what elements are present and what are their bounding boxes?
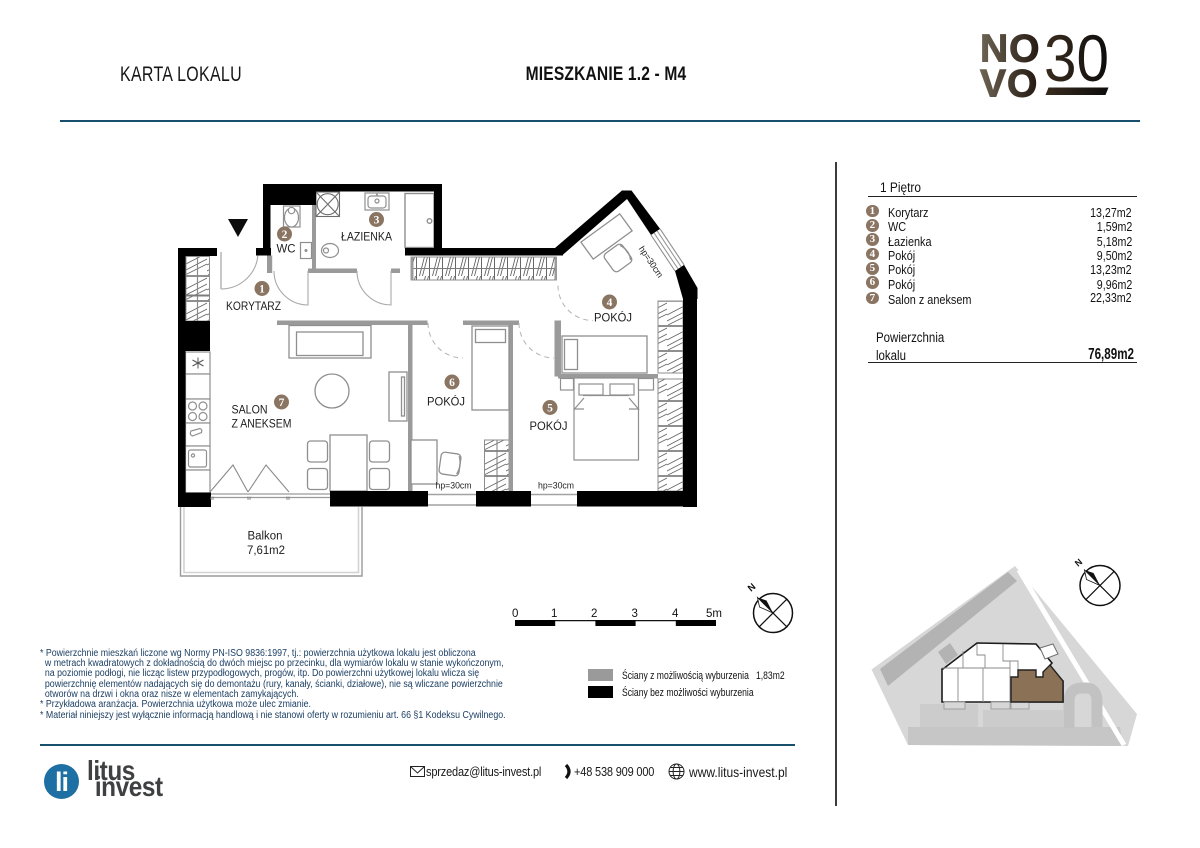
svg-text:3: 3 [374,215,380,227]
svg-text:hp=30cm: hp=30cm [436,481,472,491]
svg-text:N: N [1073,557,1084,569]
svg-text:hp=30cm: hp=30cm [538,481,574,491]
svg-text:WC: WC [277,244,296,256]
svg-text:POKÓJ: POKÓJ [427,396,465,409]
svg-text:1: 1 [551,608,557,620]
svg-text:4: 4 [672,608,679,620]
svg-text:ŁAZIENKA: ŁAZIENKA [341,232,392,244]
svg-text:5m: 5m [706,608,722,620]
svg-text:w: w [209,496,215,502]
svg-text:Balkon: Balkon [248,531,283,543]
svg-text:7: 7 [279,397,285,409]
svg-text:w: w [246,496,252,502]
svg-text:3: 3 [632,608,638,620]
svg-text:4: 4 [607,297,613,309]
svg-text:2: 2 [282,229,288,241]
svg-text:5: 5 [547,403,553,415]
svg-text:N: N [746,581,758,594]
svg-text:w: w [285,496,291,502]
svg-text:Z ANEKSEM: Z ANEKSEM [232,419,292,431]
svg-text:1: 1 [259,284,265,296]
svg-text:KORYTARZ: KORYTARZ [226,301,281,313]
svg-text:7,61m2: 7,61m2 [247,545,285,557]
svg-text:POKÓJ: POKÓJ [594,312,632,325]
svg-text:POKÓJ: POKÓJ [530,420,568,433]
svg-text:2: 2 [591,608,597,620]
svg-text:li: li [55,767,68,797]
svg-text:SALON: SALON [232,405,268,417]
svg-text:0: 0 [512,608,518,620]
svg-text:6: 6 [449,377,455,389]
